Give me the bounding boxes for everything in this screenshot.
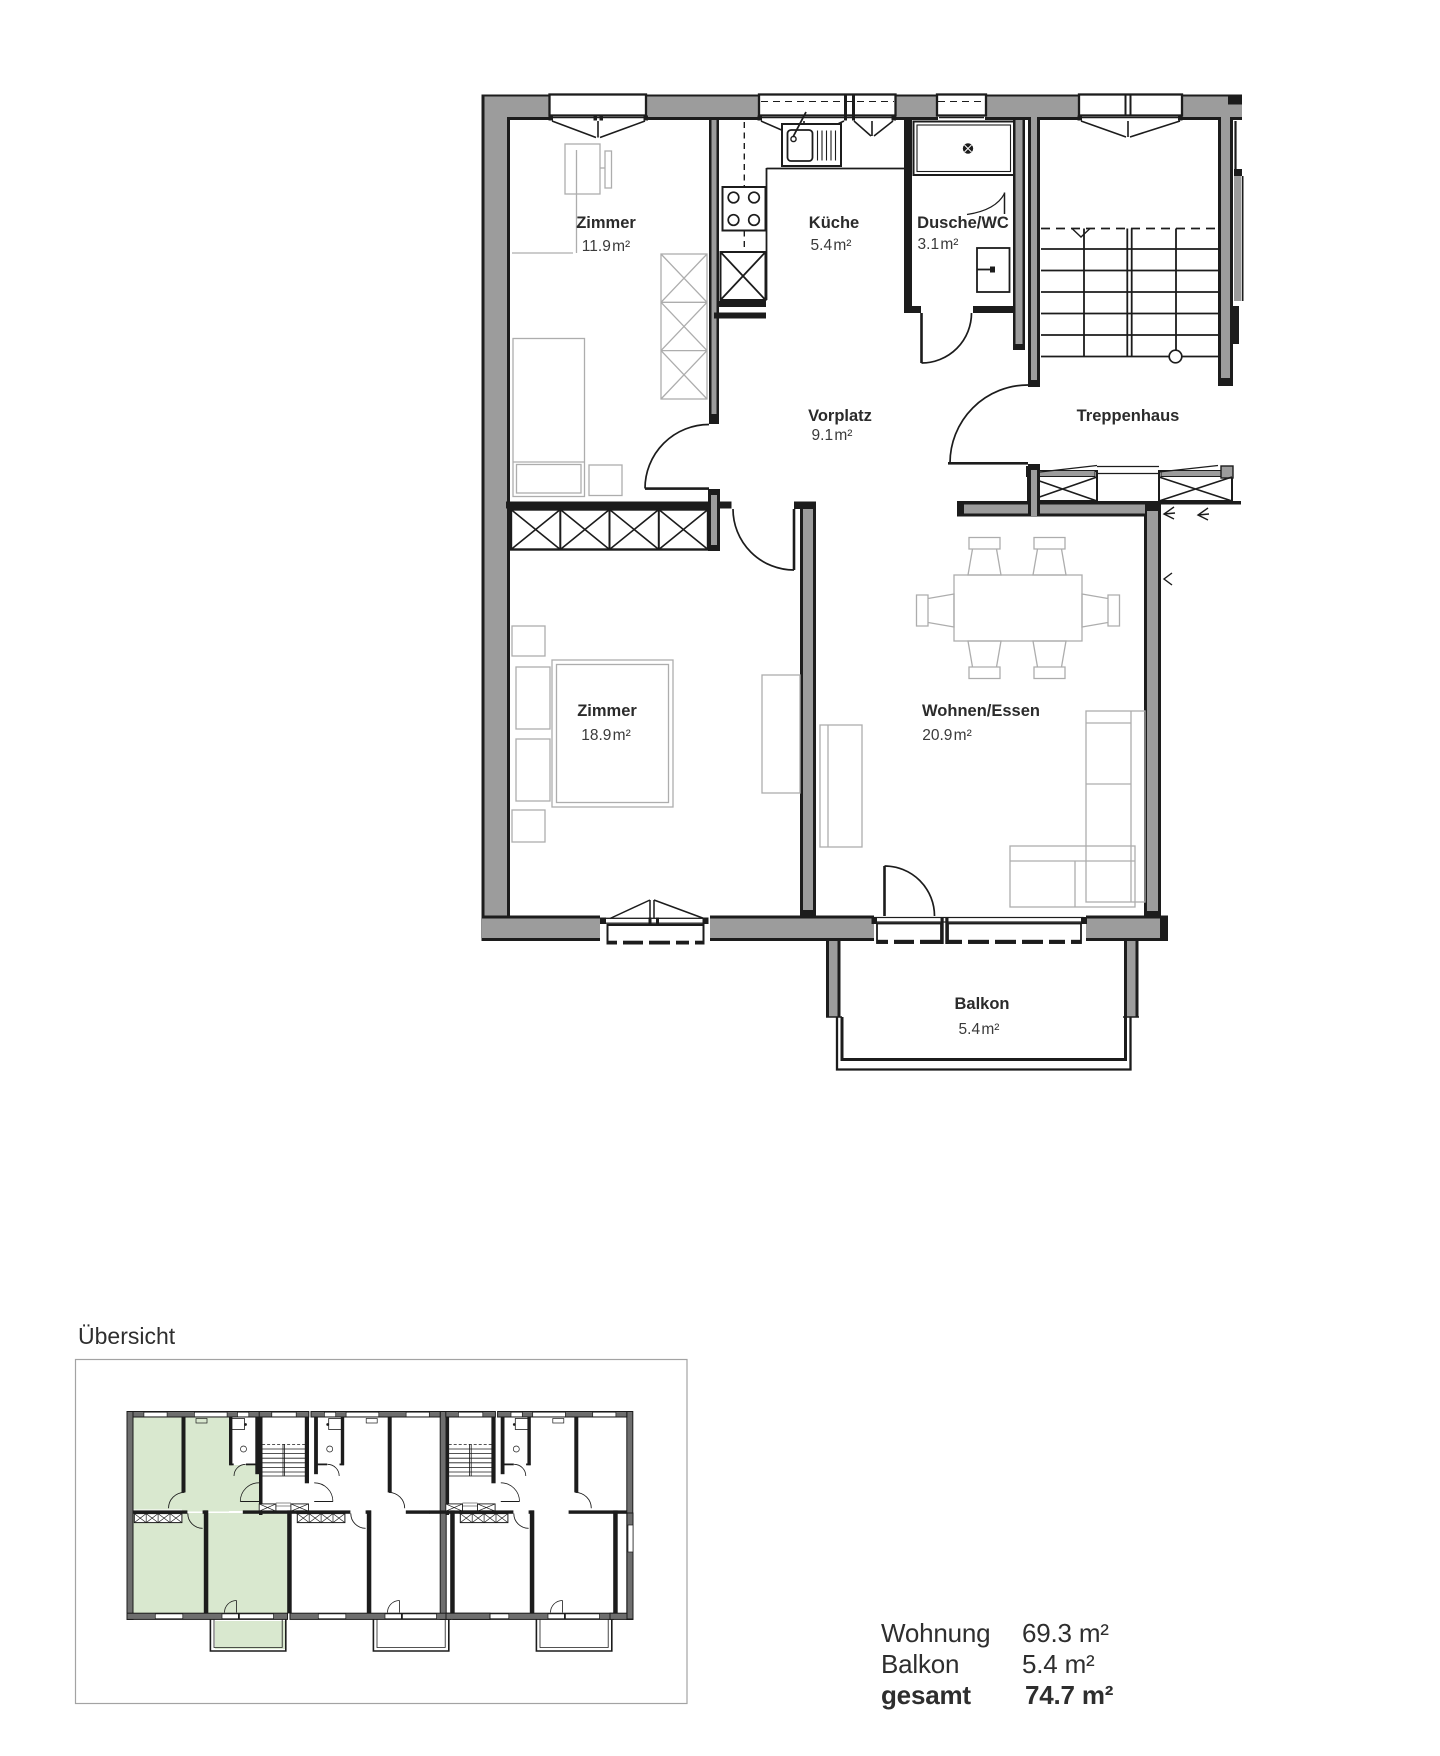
svg-text:Vorplatz: Vorplatz [808, 407, 872, 425]
svg-text:20.9 m²: 20.9 m² [922, 727, 972, 744]
svg-text:Wohnen/Essen: Wohnen/Essen [922, 702, 1040, 720]
svg-text:Wohnung: Wohnung [881, 1618, 990, 1648]
svg-text:5.4 m²: 5.4 m² [959, 1021, 1000, 1038]
svg-text:11.9 m²: 11.9 m² [582, 238, 630, 255]
svg-text:9.1 m²: 9.1 m² [812, 427, 853, 444]
svg-text:Balkon: Balkon [881, 1649, 959, 1679]
svg-text:Balkon: Balkon [954, 995, 1009, 1013]
svg-text:Zimmer: Zimmer [577, 702, 637, 720]
svg-text:Dusche/WC: Dusche/WC [917, 214, 1009, 232]
svg-text:Übersicht: Übersicht [78, 1323, 176, 1349]
svg-text:69.3 m²: 69.3 m² [1022, 1618, 1109, 1648]
svg-text:gesamt: gesamt [881, 1680, 971, 1710]
svg-text:Zimmer: Zimmer [576, 214, 636, 232]
svg-text:Treppenhaus: Treppenhaus [1077, 407, 1180, 425]
svg-text:74.7 m²: 74.7 m² [1025, 1680, 1114, 1710]
svg-text:5.4 m²: 5.4 m² [811, 237, 852, 254]
svg-text:5.4 m²: 5.4 m² [1022, 1649, 1095, 1679]
svg-text:Küche: Küche [809, 214, 859, 232]
svg-text:18.9 m²: 18.9 m² [581, 727, 631, 744]
svg-text:3.1 m²: 3.1 m² [918, 236, 959, 253]
